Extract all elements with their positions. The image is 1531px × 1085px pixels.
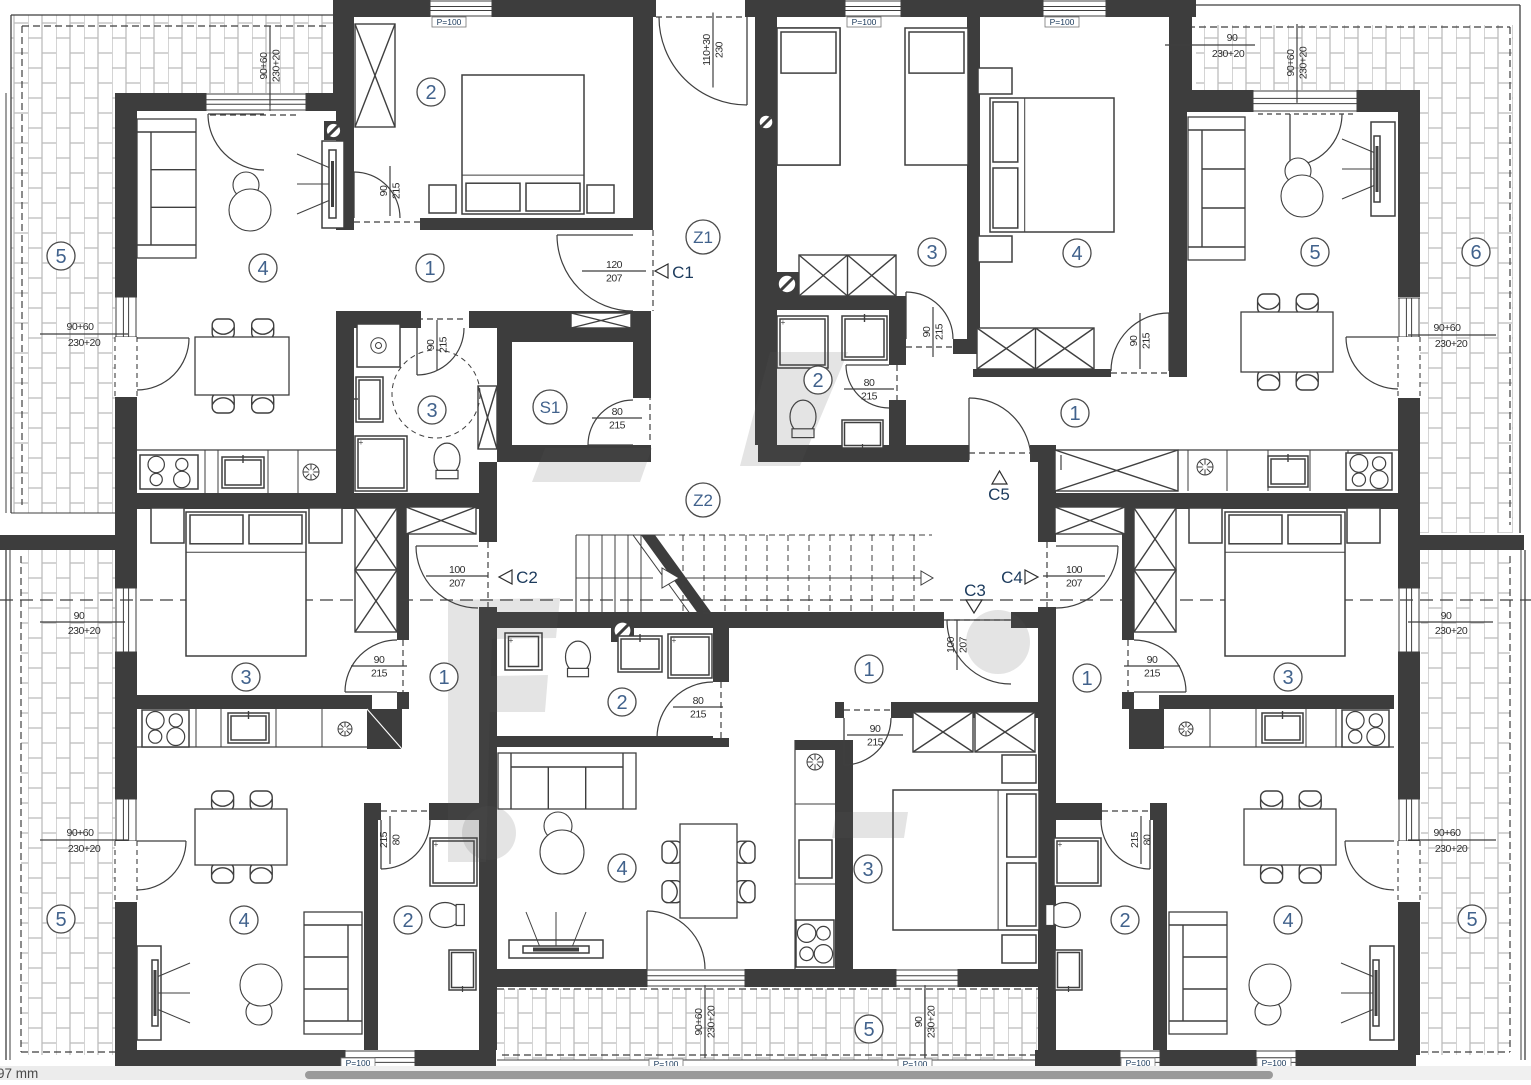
svg-text:90+60: 90+60 (1285, 49, 1297, 77)
svg-text:215: 215 (867, 737, 884, 749)
svg-text:4: 4 (238, 910, 249, 932)
svg-text:3: 3 (426, 400, 437, 422)
svg-text:230+20: 230+20 (1435, 625, 1468, 637)
svg-text:1: 1 (424, 258, 435, 280)
svg-text:80: 80 (612, 406, 623, 418)
svg-text:C3: C3 (964, 581, 986, 600)
svg-text:215: 215 (861, 391, 878, 403)
svg-text:90+60: 90+60 (67, 827, 95, 839)
svg-text:215: 215 (391, 182, 403, 199)
svg-text:90+60: 90+60 (258, 52, 270, 80)
svg-text:5: 5 (1466, 909, 1477, 931)
svg-text:90: 90 (1441, 610, 1452, 622)
svg-text:100: 100 (945, 636, 957, 653)
svg-text:4: 4 (1282, 910, 1293, 932)
svg-text:3: 3 (240, 667, 251, 689)
svg-text:C4: C4 (1001, 568, 1023, 587)
svg-text:5: 5 (55, 909, 66, 931)
svg-text:215: 215 (1144, 668, 1161, 680)
svg-text:90: 90 (378, 185, 390, 196)
svg-text:90+60: 90+60 (1434, 827, 1462, 839)
svg-text:2: 2 (402, 910, 413, 932)
svg-text:207: 207 (606, 273, 623, 285)
svg-text:90: 90 (1128, 335, 1140, 346)
svg-text:+: + (672, 636, 677, 645)
svg-text:90: 90 (425, 339, 437, 350)
svg-text:+: + (1058, 840, 1063, 849)
svg-text:2: 2 (1119, 910, 1130, 932)
svg-text:5: 5 (1309, 242, 1320, 264)
svg-text:4: 4 (257, 258, 268, 280)
svg-text:C2: C2 (516, 568, 538, 587)
svg-text:4: 4 (1071, 243, 1082, 265)
svg-text:215: 215 (690, 709, 707, 721)
svg-text:1: 1 (1081, 668, 1092, 690)
svg-text:1: 1 (1069, 403, 1080, 425)
svg-text:2: 2 (812, 370, 823, 392)
svg-text:230+20: 230+20 (926, 1005, 938, 1038)
svg-text:215: 215 (378, 831, 390, 848)
svg-text:100: 100 (1066, 564, 1083, 576)
svg-text:2: 2 (616, 692, 627, 714)
svg-text:6: 6 (1470, 242, 1481, 264)
svg-text:90: 90 (1147, 654, 1158, 666)
svg-text:230+20: 230+20 (1435, 843, 1468, 855)
svg-text:215: 215 (1129, 831, 1141, 848)
svg-text:1: 1 (438, 667, 449, 689)
svg-text:207: 207 (449, 578, 466, 590)
svg-text:P=100: P=100 (852, 17, 877, 27)
svg-text:215: 215 (438, 336, 450, 353)
svg-text:+: + (781, 318, 786, 327)
svg-text:P=100: P=100 (437, 17, 462, 27)
svg-text:215: 215 (1141, 332, 1153, 349)
svg-text:Z1: Z1 (693, 228, 713, 247)
svg-text:+: + (434, 840, 439, 849)
svg-text:120: 120 (606, 259, 623, 271)
svg-text:230: 230 (714, 41, 726, 58)
svg-text:80: 80 (391, 834, 403, 845)
svg-text:80: 80 (1142, 834, 1154, 845)
svg-text:3: 3 (1282, 667, 1293, 689)
svg-text:90+60: 90+60 (67, 321, 95, 333)
svg-text:5: 5 (55, 246, 66, 268)
svg-text:+: + (359, 438, 364, 447)
svg-text:97 mm: 97 mm (0, 1066, 38, 1080)
svg-text:80: 80 (693, 695, 704, 707)
svg-text:90: 90 (374, 654, 385, 666)
svg-text:230+20: 230+20 (1212, 48, 1245, 60)
svg-text:207: 207 (958, 636, 970, 653)
svg-text:3: 3 (862, 859, 873, 881)
svg-text:C5: C5 (988, 485, 1010, 504)
svg-text:215: 215 (934, 323, 946, 340)
svg-text:Z2: Z2 (693, 491, 713, 510)
svg-text:S1: S1 (540, 398, 561, 417)
svg-text:230+20: 230+20 (271, 49, 283, 82)
svg-text:230+20: 230+20 (706, 1005, 718, 1038)
svg-text:215: 215 (371, 668, 388, 680)
svg-text:1: 1 (863, 659, 874, 681)
svg-text:90: 90 (870, 723, 881, 735)
svg-text:207: 207 (1066, 578, 1083, 590)
svg-text:90: 90 (913, 1016, 925, 1027)
svg-text:P=100: P=100 (1050, 17, 1075, 27)
svg-text:110+30: 110+30 (701, 34, 713, 66)
svg-text:230+20: 230+20 (68, 625, 101, 637)
svg-text:4: 4 (616, 858, 627, 880)
svg-text:90: 90 (1227, 32, 1238, 44)
svg-text:90+60: 90+60 (693, 1008, 705, 1036)
svg-text:90: 90 (74, 610, 85, 622)
svg-text:100: 100 (449, 564, 466, 576)
svg-text:230+20: 230+20 (68, 337, 101, 349)
svg-text:215: 215 (609, 420, 626, 432)
svg-text:90: 90 (921, 326, 933, 337)
svg-text:2: 2 (425, 82, 436, 104)
svg-text:90+60: 90+60 (1434, 322, 1462, 334)
svg-text:5: 5 (863, 1019, 874, 1041)
svg-text:80: 80 (864, 377, 875, 389)
svg-text:230+20: 230+20 (1298, 46, 1310, 79)
svg-text:230+20: 230+20 (1435, 338, 1468, 350)
svg-text:C1: C1 (672, 263, 694, 282)
svg-text:230+20: 230+20 (68, 843, 101, 855)
svg-text:3: 3 (926, 242, 937, 264)
